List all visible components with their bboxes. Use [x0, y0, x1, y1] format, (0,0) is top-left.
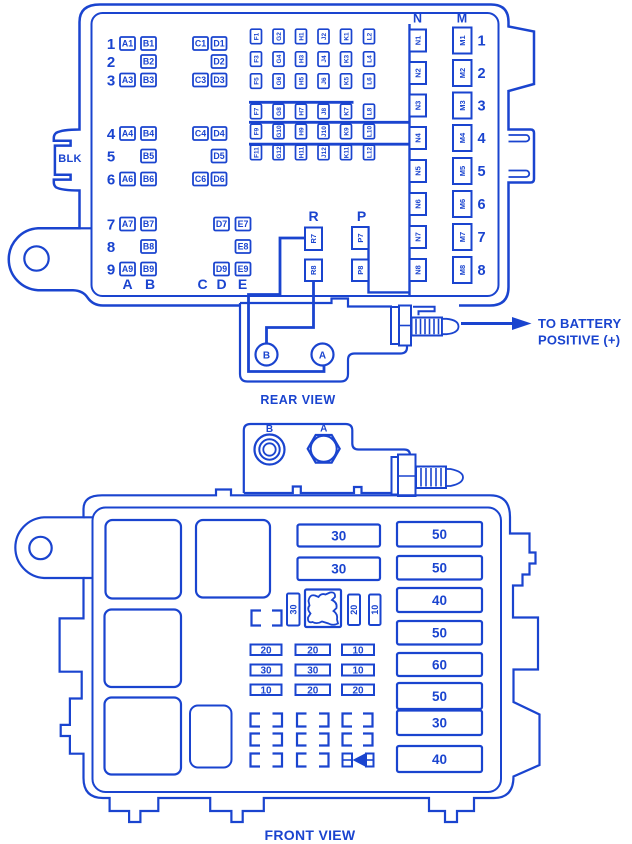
svg-text:L6: L6 [366, 77, 373, 85]
svg-text:E7: E7 [238, 219, 249, 229]
svg-text:L2: L2 [366, 32, 373, 40]
svg-text:L8: L8 [366, 107, 373, 115]
svg-text:BLK: BLK [58, 153, 82, 165]
svg-text:H11: H11 [298, 146, 305, 158]
svg-text:A4: A4 [122, 129, 133, 139]
svg-text:K1: K1 [343, 32, 350, 41]
svg-text:D7: D7 [216, 219, 227, 229]
svg-text:N7: N7 [413, 232, 422, 242]
svg-text:7: 7 [107, 216, 115, 233]
svg-text:N5: N5 [413, 166, 422, 176]
svg-text:8: 8 [107, 239, 115, 256]
svg-text:1: 1 [478, 34, 486, 50]
svg-text:F7: F7 [253, 107, 260, 115]
svg-text:D6: D6 [213, 174, 224, 184]
svg-text:N8: N8 [413, 265, 422, 275]
svg-text:M8: M8 [458, 265, 467, 275]
svg-text:J6: J6 [321, 77, 328, 85]
svg-text:F9: F9 [253, 127, 260, 135]
svg-text:K3: K3 [343, 54, 350, 63]
svg-text:N6: N6 [413, 199, 422, 209]
svg-text:J8: J8 [321, 108, 328, 116]
svg-text:F5: F5 [253, 77, 260, 85]
svg-text:B1: B1 [143, 39, 154, 49]
svg-text:B3: B3 [143, 75, 154, 85]
svg-text:20: 20 [307, 685, 319, 696]
svg-text:H1: H1 [298, 32, 305, 41]
svg-text:P7: P7 [356, 233, 365, 242]
svg-text:F3: F3 [253, 55, 260, 63]
svg-text:B4: B4 [143, 129, 154, 139]
svg-text:P: P [357, 208, 366, 224]
svg-text:K7: K7 [343, 107, 350, 116]
svg-text:F1: F1 [253, 32, 260, 40]
svg-text:R8: R8 [309, 265, 318, 275]
svg-text:B8: B8 [143, 242, 154, 252]
svg-text:FRONT VIEW: FRONT VIEW [265, 827, 356, 843]
svg-text:3: 3 [107, 72, 115, 89]
svg-text:60: 60 [432, 657, 447, 672]
svg-text:H9: H9 [298, 127, 305, 136]
svg-text:1: 1 [107, 36, 115, 53]
svg-text:D4: D4 [213, 129, 224, 139]
svg-text:J10: J10 [321, 126, 328, 137]
svg-text:B7: B7 [143, 219, 154, 229]
svg-text:2: 2 [478, 66, 486, 82]
svg-text:7: 7 [478, 230, 486, 246]
svg-text:30: 30 [432, 716, 447, 731]
svg-text:N1: N1 [413, 36, 422, 46]
svg-text:30: 30 [331, 528, 346, 543]
svg-text:9: 9 [107, 261, 115, 278]
svg-text:L10: L10 [366, 126, 373, 138]
svg-text:D3: D3 [213, 75, 224, 85]
svg-text:B5: B5 [143, 151, 154, 161]
svg-text:F11: F11 [253, 147, 260, 158]
svg-text:50: 50 [432, 561, 447, 576]
svg-text:TO BATTERY: TO BATTERY [538, 316, 621, 331]
svg-text:D5: D5 [213, 151, 224, 161]
svg-text:A: A [320, 424, 327, 435]
svg-text:20: 20 [349, 605, 359, 615]
svg-text:40: 40 [432, 593, 447, 608]
svg-text:6: 6 [107, 171, 115, 188]
svg-text:50: 50 [432, 626, 447, 641]
svg-text:E: E [238, 276, 247, 292]
svg-text:C6: C6 [195, 174, 206, 184]
svg-text:4: 4 [478, 131, 486, 147]
svg-text:M4: M4 [458, 132, 467, 143]
svg-text:N3: N3 [413, 101, 422, 111]
svg-text:40: 40 [432, 752, 447, 767]
svg-text:J12: J12 [321, 147, 328, 158]
svg-text:A9: A9 [122, 264, 133, 274]
svg-text:B: B [263, 350, 270, 361]
svg-text:M2: M2 [458, 68, 467, 78]
svg-text:30: 30 [331, 562, 346, 577]
svg-text:6: 6 [478, 197, 486, 213]
svg-text:H5: H5 [298, 76, 305, 85]
svg-text:M1: M1 [458, 35, 467, 45]
svg-text:J2: J2 [321, 33, 328, 41]
svg-text:C4: C4 [195, 129, 206, 139]
svg-text:5: 5 [107, 148, 115, 165]
svg-text:G12: G12 [276, 146, 283, 159]
svg-text:POSITIVE (+): POSITIVE (+) [538, 333, 620, 348]
svg-text:30: 30 [260, 666, 272, 677]
svg-text:M6: M6 [458, 199, 467, 209]
svg-text:10: 10 [260, 685, 272, 696]
svg-text:G2: G2 [276, 32, 283, 41]
svg-text:A: A [319, 350, 326, 361]
svg-text:A1: A1 [122, 39, 133, 49]
svg-text:K9: K9 [343, 127, 350, 136]
svg-text:E9: E9 [238, 264, 249, 274]
svg-text:D2: D2 [213, 57, 224, 67]
svg-text:B2: B2 [143, 57, 154, 67]
svg-text:D1: D1 [213, 39, 224, 49]
svg-text:30: 30 [288, 604, 298, 614]
svg-text:G8: G8 [276, 107, 283, 116]
svg-text:L12: L12 [366, 147, 373, 159]
svg-text:G10: G10 [276, 125, 283, 138]
svg-text:20: 20 [352, 685, 364, 696]
svg-text:B6: B6 [143, 174, 154, 184]
svg-text:H3: H3 [298, 54, 305, 63]
svg-text:C1: C1 [195, 39, 206, 49]
svg-text:2: 2 [107, 54, 115, 71]
svg-text:K5: K5 [343, 76, 350, 85]
svg-text:M5: M5 [458, 166, 467, 176]
svg-text:E8: E8 [238, 242, 249, 252]
svg-text:A: A [122, 276, 132, 292]
svg-text:10: 10 [352, 666, 364, 677]
svg-text:D9: D9 [216, 264, 227, 274]
svg-text:M3: M3 [458, 100, 467, 110]
svg-text:8: 8 [478, 263, 486, 279]
svg-text:20: 20 [260, 645, 272, 656]
svg-text:C: C [197, 276, 207, 292]
svg-text:N2: N2 [413, 68, 422, 78]
svg-text:M: M [457, 12, 467, 26]
svg-text:30: 30 [307, 666, 319, 677]
svg-text:R7: R7 [309, 234, 318, 244]
svg-text:P8: P8 [356, 266, 365, 275]
svg-text:50: 50 [432, 689, 447, 704]
svg-text:20: 20 [307, 645, 319, 656]
svg-text:B: B [266, 424, 273, 435]
svg-text:50: 50 [432, 527, 447, 542]
svg-text:5: 5 [478, 164, 486, 180]
svg-text:M7: M7 [458, 232, 467, 242]
svg-text:K11: K11 [343, 146, 350, 158]
svg-text:10: 10 [352, 645, 364, 656]
svg-text:G6: G6 [276, 76, 283, 85]
svg-text:D: D [216, 276, 226, 292]
svg-text:N: N [413, 12, 422, 26]
svg-text:H7: H7 [298, 107, 305, 116]
svg-text:R: R [308, 208, 318, 224]
svg-text:REAR VIEW: REAR VIEW [260, 393, 335, 407]
svg-text:C3: C3 [195, 75, 206, 85]
svg-text:4: 4 [107, 126, 116, 143]
svg-text:10: 10 [370, 605, 380, 615]
svg-text:J4: J4 [321, 55, 328, 63]
svg-text:A7: A7 [122, 219, 133, 229]
svg-text:B: B [145, 276, 155, 292]
svg-text:A3: A3 [122, 75, 133, 85]
svg-text:B9: B9 [143, 264, 154, 274]
svg-text:A6: A6 [122, 174, 133, 184]
svg-text:3: 3 [478, 99, 486, 115]
svg-text:N4: N4 [413, 132, 422, 142]
svg-text:L4: L4 [366, 55, 373, 63]
svg-text:G4: G4 [276, 54, 283, 63]
